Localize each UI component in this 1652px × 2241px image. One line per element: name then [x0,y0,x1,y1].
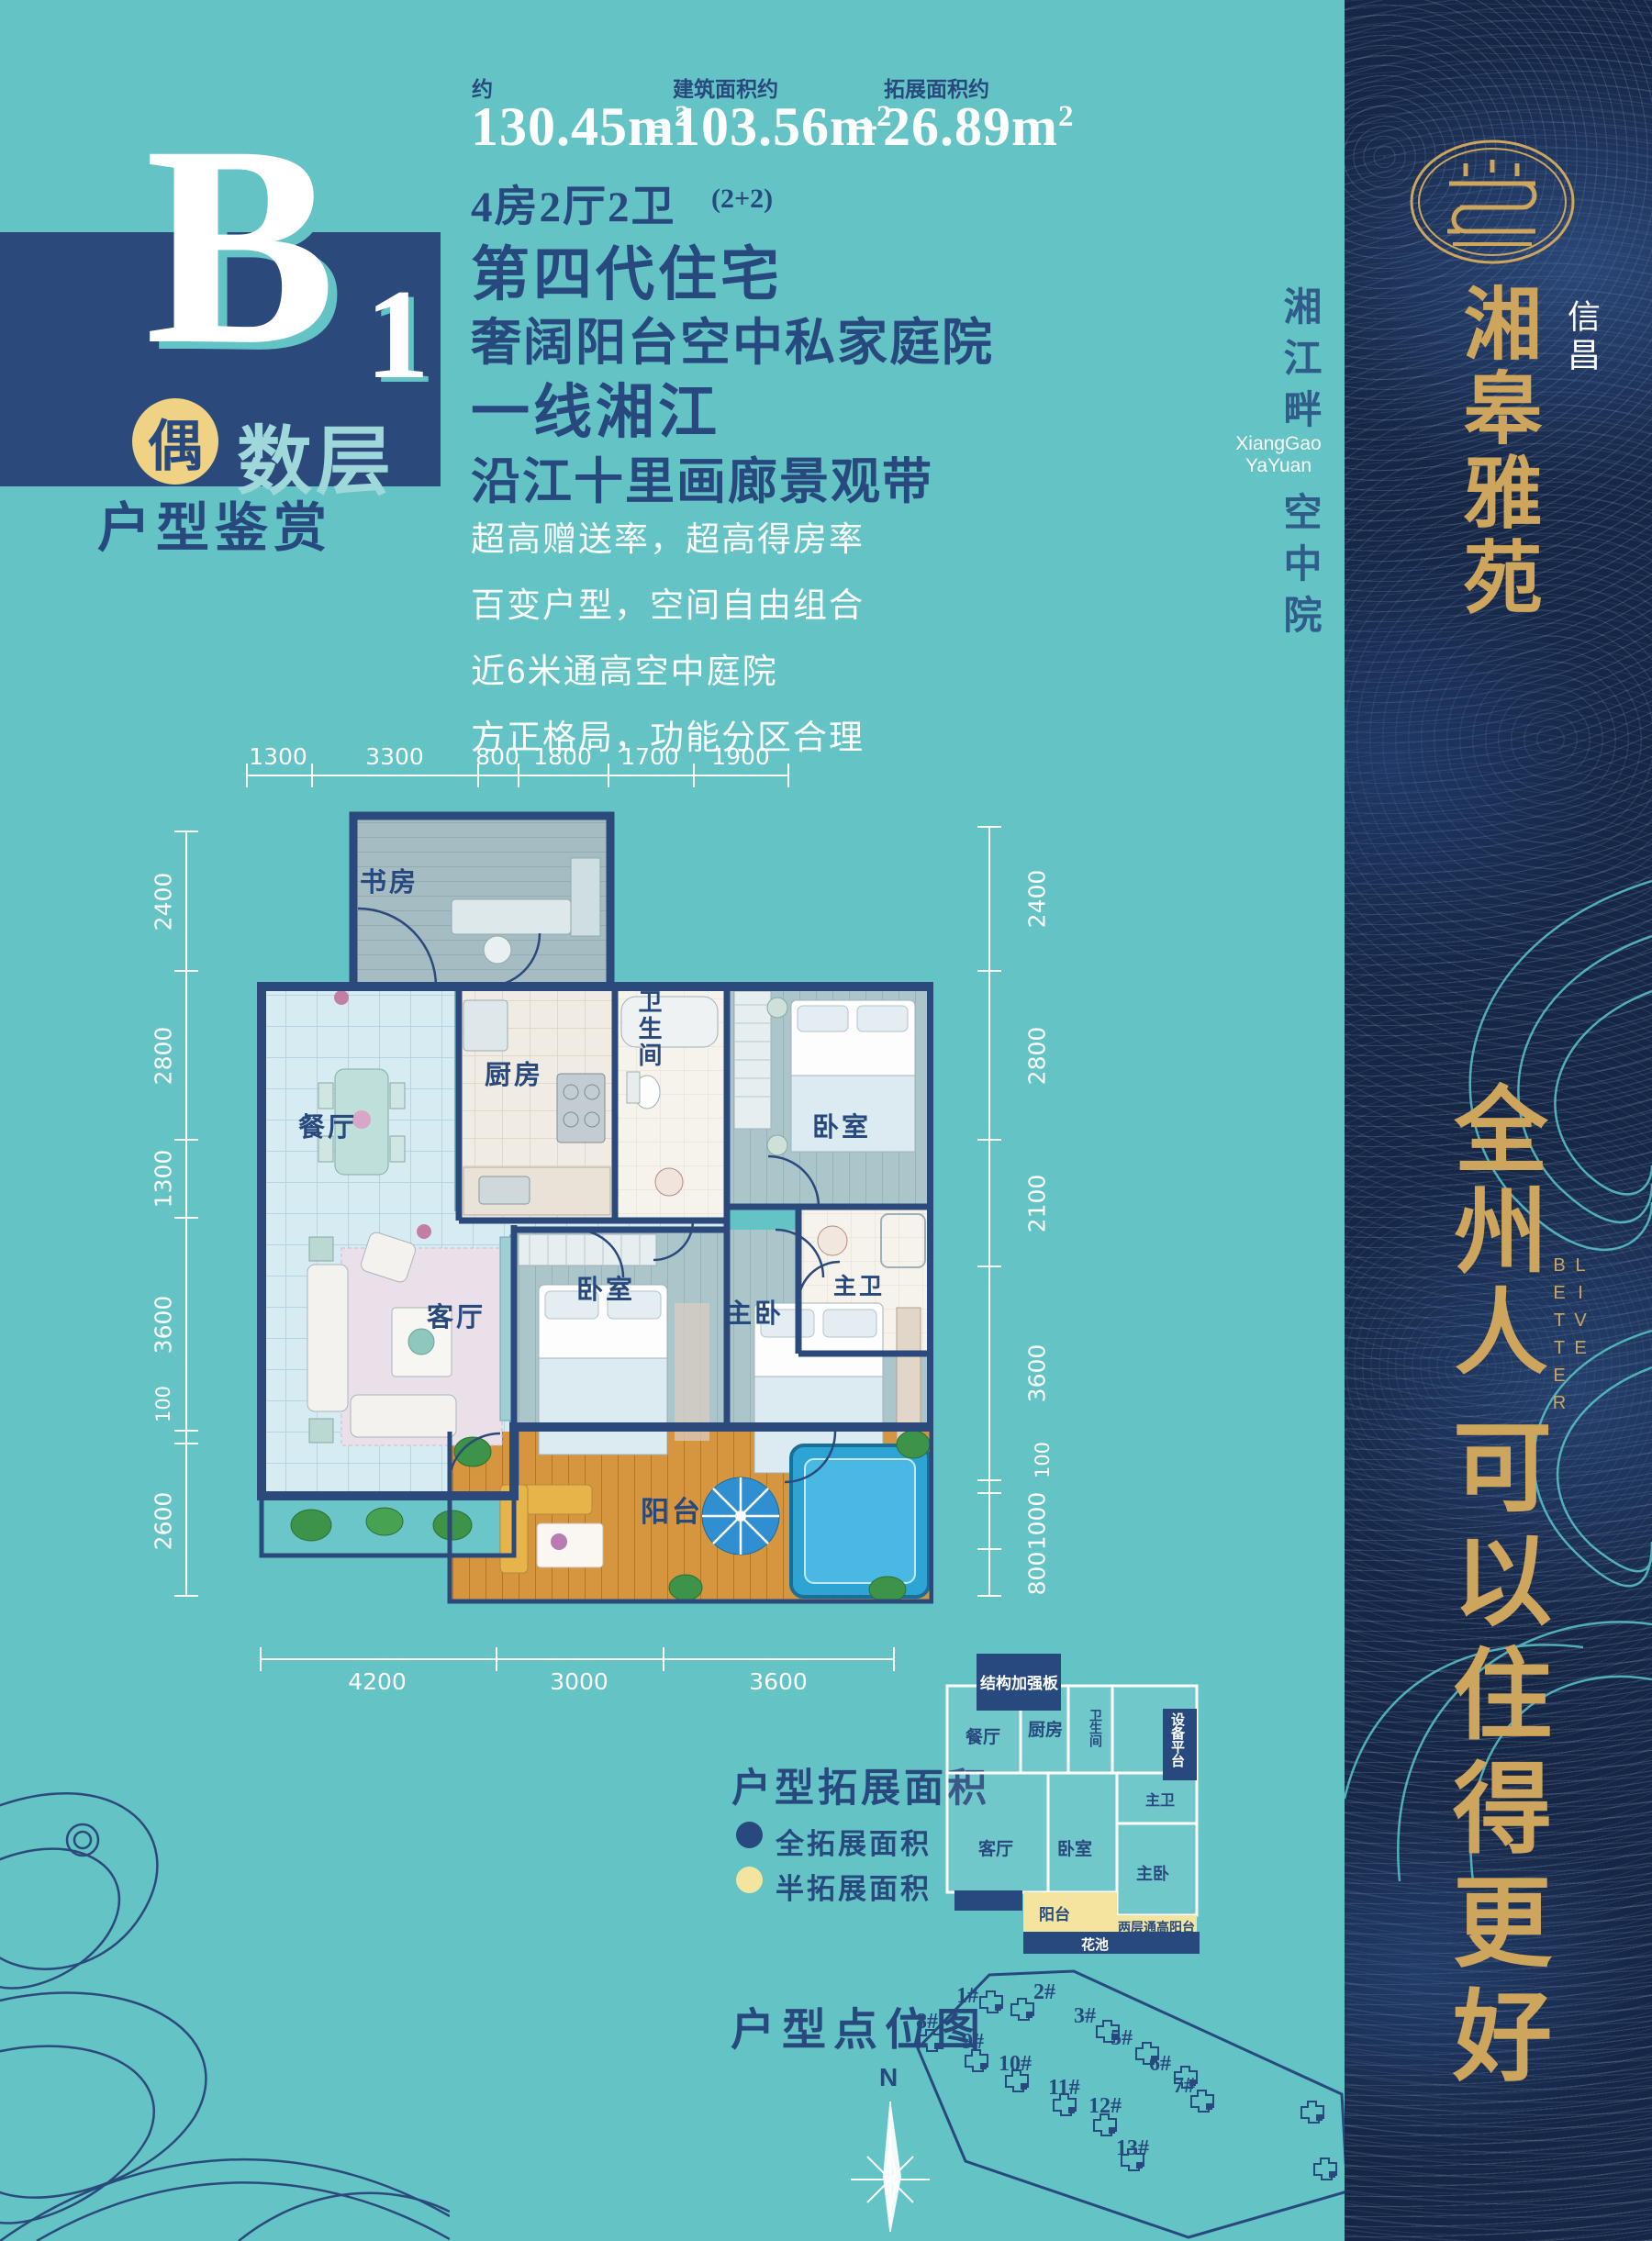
brand-seal-logo [1405,136,1579,269]
dim-left: 2800 [151,1020,177,1093]
dim-tick [977,1265,1001,1267]
building-label-10: 10# [999,2052,1032,2077]
dim-tick [174,1443,198,1444]
dim-tick [893,1647,895,1671]
building-label-9: 9# [962,2030,984,2055]
dim-left: 1300 [151,1143,177,1216]
dim-tick [977,826,1001,828]
building-label-6: 6# [1149,2052,1171,2077]
dim-bottom: 3600 [742,1668,815,1695]
dim-tick [977,1479,1001,1481]
dim-tick [174,1139,198,1141]
dim-right: 2100 [1024,1167,1051,1241]
dim-top: 1800 [526,743,599,770]
dim-tick [977,1492,1001,1494]
floorplan-drawing [254,808,933,1606]
building-label-13: 13# [1116,2136,1149,2161]
rooms-line: 4房2厅2卫 [471,171,676,234]
building-label-5: 5# [1111,2026,1133,2051]
headline-3: 一线湘江 [471,365,720,450]
dim-top: 800 [461,743,534,770]
mini-label-tall-balcony: 两层通高阳台 [1118,1918,1195,1936]
dim-tick [693,764,695,787]
dim-tick [787,764,789,787]
mini-label-flower-bed: 花池 [1081,1934,1109,1954]
dim-bottom: 4200 [340,1668,414,1695]
brand-panel: 信昌 湘皋雅苑 全州人 LIVE BETTER 可以住得更好 [1345,0,1652,2241]
even-floor-badge: 偶 [132,398,218,485]
poster-root: B 1 偶 数层 户型鉴赏 约 130.45m2 = 建筑面积约 103.56m… [0,0,1652,2241]
dim-tick [260,1647,262,1671]
dim-top: 1900 [704,743,777,770]
dim-tick [496,1647,497,1671]
dim-tick [174,1595,198,1597]
dim-top: 3300 [358,743,431,770]
dim-left: 2600 [151,1485,177,1558]
dim-tick [977,1139,1001,1141]
unit-letter: B [145,108,336,384]
dim-left: 100 [152,1367,174,1441]
mini-label-kitchen: 厨房 [1028,1716,1063,1741]
dim-bottom: 3000 [542,1668,616,1695]
building-label-2: 2# [1033,1980,1055,2005]
dim-line-bottom [260,1658,895,1660]
room-label-bedroom1: 卧室 [812,1106,871,1144]
selling-point: 百变户型，空间自由组合 [471,573,865,639]
selling-point: 超高赠送率，超高得房率 [471,507,865,573]
dim-tick [174,831,198,832]
rooms-note: (2+2) [711,184,773,215]
building-label-12: 12# [1088,2094,1122,2119]
brand-latin-1: XiangGao [1210,433,1347,455]
room-label-bath: 卫生间 [631,989,665,1090]
brand-name: 湘皋雅苑 [1438,283,1553,641]
unit-number: 1 [365,275,430,395]
dim-left: 2400 [151,865,177,939]
dim-tick [174,1430,198,1432]
legend-half-swatch [736,1867,763,1893]
legend-full-label: 全拓展面积 [776,1821,932,1862]
dim-tick [977,1548,1001,1550]
room-label-master-bath: 主卫 [833,1268,885,1301]
building-label-7: 7# [1173,2074,1195,2099]
dim-tick [663,1647,664,1671]
building-label-11: 11# [1048,2076,1080,2101]
room-label-bedroom2: 卧室 [576,1268,635,1307]
building-label-3: 3# [1074,2004,1096,2029]
dim-line-right [988,826,990,1597]
selling-point: 近6米通高空中庭院 [471,639,865,705]
brand-latin-2: YaYuan [1210,455,1347,477]
building-label-1: 1# [956,1984,978,2009]
dim-tick [174,1217,198,1219]
room-label-dining: 餐厅 [298,1106,357,1144]
selling-points: 超高赠送率，超高得房率 百变户型，空间自由组合 近6米通高空中庭院 方正格局，功… [471,507,865,771]
dim-tick [608,764,609,787]
legend-full-swatch [736,1822,763,1848]
mini-label-bath: 卫生间 [1085,1709,1103,1764]
room-label-study: 书房 [360,861,419,899]
headline-2: 奢阔阳台空中私家庭院 [471,301,994,374]
room-label-balcony: 阳台 [641,1488,703,1530]
dim-left: 3600 [151,1288,177,1362]
unit-caption: 户型鉴赏 [97,485,332,562]
mini-label-living: 客厅 [978,1835,1013,1860]
room-label-master: 主卧 [725,1292,784,1331]
dim-tick [174,970,198,972]
river-text-1: 湘江畔 [1272,286,1328,452]
mini-label-balcony: 阳台 [1039,1901,1070,1924]
dim-top: 1300 [241,743,315,770]
dim-right: 2400 [1024,863,1051,936]
dim-tick [977,970,1001,972]
dim-right: 3600 [1024,1337,1051,1410]
area-equals: = [648,106,673,155]
dim-line-left [185,831,187,1597]
slogan-top: 全州人 [1424,1081,1559,1402]
mini-label-master: 主卧 [1136,1861,1169,1885]
compass-icon [840,2092,941,2241]
mini-label-dining: 餐厅 [966,1723,1000,1748]
mini-label-master-bath: 主卫 [1145,1788,1175,1810]
river-text-2: 空中院 [1272,492,1328,666]
legend-half-label: 半拓展面积 [776,1866,932,1907]
headline-1: 第四代住宅 [471,228,783,312]
dim-right: 2800 [1024,1020,1051,1093]
slogan-bottom: 可以住得更好 [1421,1415,1564,2158]
area-expand-value: 26.89m2 [883,95,1074,159]
room-label-living: 客厅 [427,1296,486,1334]
dim-right: 800 [1024,1537,1051,1611]
mini-label-bedroom: 卧室 [1057,1835,1092,1860]
dim-top: 1700 [613,743,686,770]
developer-name: 信昌 [1557,299,1605,386]
room-label-kitchen: 厨房 [485,1054,543,1092]
compass-n-label: N [879,2063,898,2092]
contour-decoration-bottom-left [0,1702,450,2241]
building-label-8: 8# [916,2010,938,2035]
area-plus: + [854,103,879,153]
mini-label-equipment: 设备平台 [1167,1712,1187,1778]
even-floor-badge-text: 偶 [148,402,203,482]
mini-label-reinforce: 结构加强板 [980,1670,1058,1693]
dim-tick [977,1595,1001,1597]
headline-4: 沿江十里画廊景观带 [471,440,933,513]
